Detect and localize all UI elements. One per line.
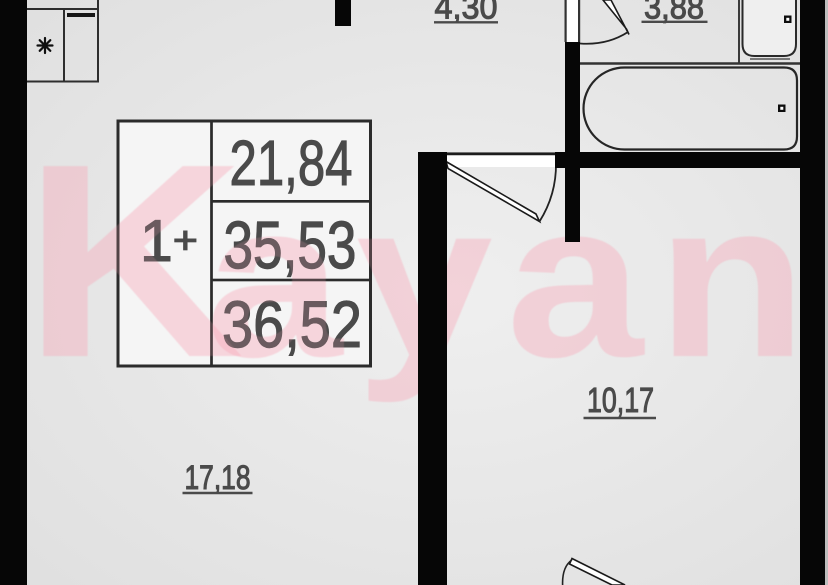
svg-text:35,53: 35,53 <box>224 208 357 283</box>
svg-text:36,52: 36,52 <box>222 287 362 361</box>
svg-text:1+: 1+ <box>140 208 198 274</box>
